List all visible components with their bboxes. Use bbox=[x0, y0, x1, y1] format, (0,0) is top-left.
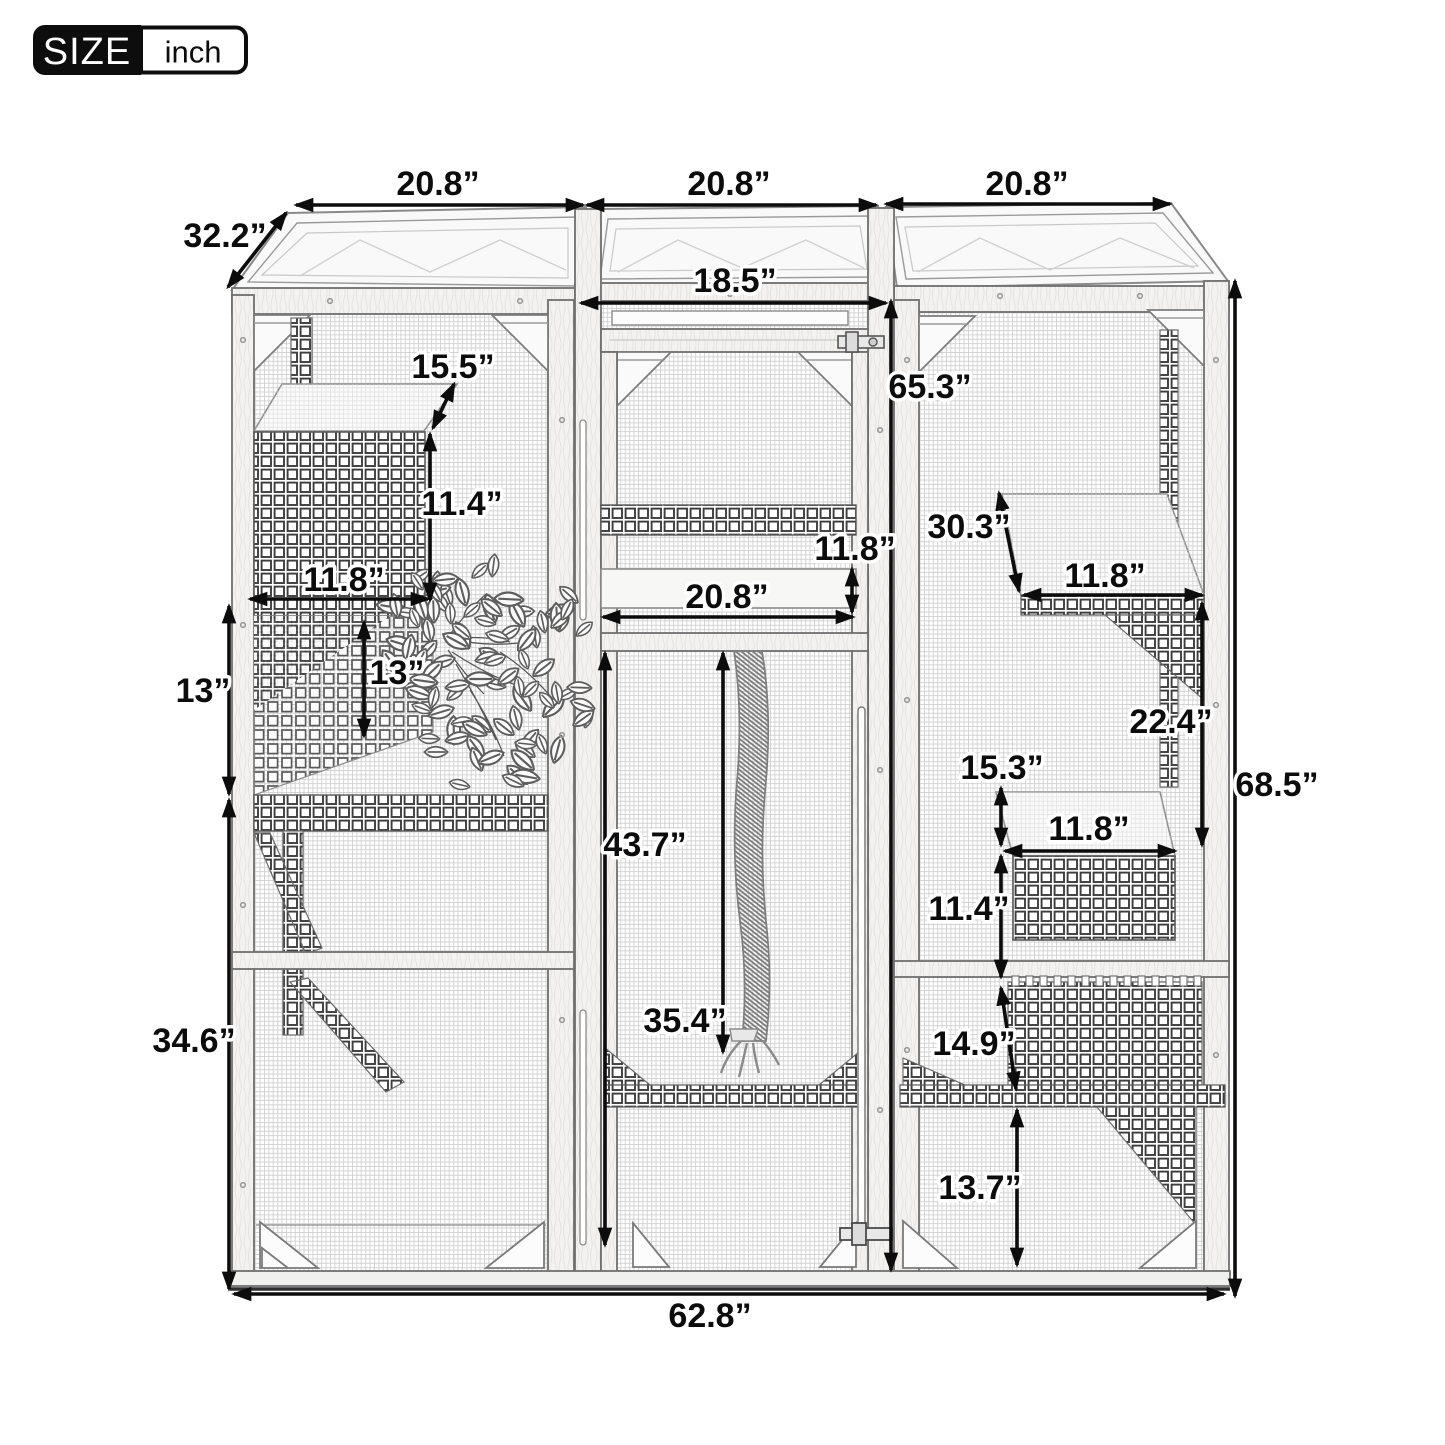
svg-text:11.8”: 11.8” bbox=[1064, 557, 1145, 595]
svg-text:11.4”: 11.4” bbox=[928, 890, 1009, 928]
svg-text:20.8”: 20.8” bbox=[985, 165, 1068, 203]
svg-text:22.4”: 22.4” bbox=[1129, 703, 1212, 741]
svg-text:15.5”: 15.5” bbox=[411, 348, 494, 386]
svg-text:13”: 13” bbox=[176, 672, 231, 710]
svg-text:43.7”: 43.7” bbox=[603, 826, 686, 864]
svg-text:34.6”: 34.6” bbox=[152, 1022, 235, 1060]
svg-text:15.3”: 15.3” bbox=[960, 749, 1043, 787]
svg-text:20.8”: 20.8” bbox=[687, 165, 770, 203]
svg-text:13”: 13” bbox=[370, 654, 425, 692]
svg-text:65.3”: 65.3” bbox=[888, 368, 971, 406]
svg-text:30.3”: 30.3” bbox=[927, 508, 1010, 546]
svg-text:62.8”: 62.8” bbox=[668, 1297, 751, 1335]
svg-text:11.8”: 11.8” bbox=[814, 530, 895, 568]
svg-text:11.4”: 11.4” bbox=[421, 485, 502, 523]
svg-text:35.4”: 35.4” bbox=[643, 1002, 726, 1040]
svg-text:20.8”: 20.8” bbox=[396, 165, 479, 203]
svg-text:32.2”: 32.2” bbox=[183, 217, 266, 255]
svg-text:20.8”: 20.8” bbox=[685, 578, 768, 616]
svg-text:13.7”: 13.7” bbox=[938, 1169, 1021, 1207]
svg-text:SIZE: SIZE bbox=[43, 31, 131, 73]
svg-text:inch: inch bbox=[165, 35, 222, 70]
svg-text:11.8”: 11.8” bbox=[1048, 810, 1129, 848]
svg-text:68.5”: 68.5” bbox=[1235, 766, 1318, 804]
svg-text:11.8”: 11.8” bbox=[303, 561, 384, 599]
svg-text:18.5”: 18.5” bbox=[693, 262, 776, 300]
svg-text:14.9”: 14.9” bbox=[932, 1025, 1015, 1063]
